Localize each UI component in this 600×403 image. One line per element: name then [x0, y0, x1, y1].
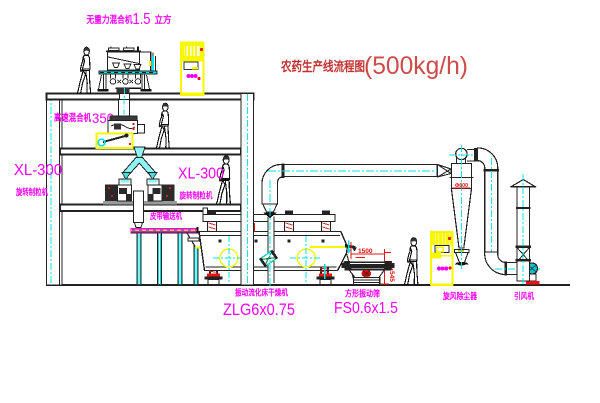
- svg-text:XL-300: XL-300: [14, 162, 62, 179]
- svg-text:立方: 立方: [155, 14, 172, 26]
- svg-text:皮带输送机: 皮带输送机: [149, 211, 182, 221]
- svg-text:旋转制粒机: 旋转制粒机: [15, 187, 48, 197]
- svg-text:545: 545: [388, 271, 395, 282]
- svg-text:农药生产线流程图: 农药生产线流程图: [280, 59, 365, 74]
- svg-text:1.5: 1.5: [133, 11, 151, 28]
- svg-text:1500: 1500: [358, 248, 373, 255]
- svg-text:XL-300: XL-300: [178, 166, 224, 183]
- svg-text:无重力混合机: 无重力混合机: [86, 14, 133, 26]
- svg-text:引风机: 引风机: [514, 291, 534, 301]
- svg-text:方形振动筛: 方形振动筛: [345, 289, 380, 299]
- svg-text:旋转制粒机: 旋转制粒机: [179, 191, 213, 201]
- svg-text:ZLG6x0.75: ZLG6x0.75: [223, 300, 295, 319]
- svg-text:(500kg/h): (500kg/h): [364, 52, 468, 80]
- svg-text:高速混合机: 高速混合机: [54, 112, 91, 124]
- svg-text:旋风除尘器: 旋风除尘器: [442, 291, 477, 301]
- svg-text:FS0.6x1.5: FS0.6x1.5: [334, 300, 398, 317]
- svg-text:振动流化床干燥机: 振动流化床干燥机: [235, 288, 288, 298]
